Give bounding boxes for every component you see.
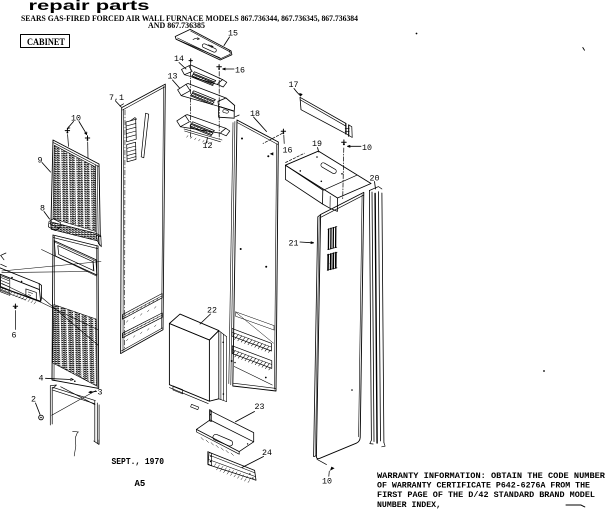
- svg-text:10: 10: [362, 144, 372, 153]
- svg-text:10: 10: [322, 478, 332, 487]
- svg-text:9: 9: [38, 157, 43, 166]
- svg-text:repair parts: repair parts: [29, 0, 150, 13]
- svg-text:FIRST PAGE OF THE D/42 STANDAR: FIRST PAGE OF THE D/42 STANDARD BRAND MO…: [377, 490, 595, 500]
- svg-text:CABINET: CABINET: [27, 37, 65, 47]
- svg-text:NUMBER INDEX,: NUMBER INDEX,: [377, 500, 441, 510]
- svg-text:SEPT., 1970: SEPT., 1970: [112, 457, 165, 467]
- svg-text:4: 4: [39, 375, 44, 384]
- svg-text:AND 867.736385: AND 867.736385: [148, 21, 205, 30]
- svg-text:WARRANTY INFORMATION: OBTAIN: WARRANTY INFORMATION: OBTAIN THE CODE NU…: [377, 471, 606, 481]
- svg-text:A5: A5: [135, 479, 146, 489]
- svg-text:3: 3: [98, 389, 103, 398]
- svg-text:18: 18: [250, 110, 260, 119]
- svg-text:6: 6: [12, 332, 17, 341]
- svg-text:17: 17: [289, 81, 299, 90]
- svg-text:16: 16: [235, 66, 245, 75]
- svg-text:23: 23: [255, 403, 265, 412]
- svg-text:21: 21: [289, 240, 299, 249]
- svg-text:19: 19: [312, 140, 322, 149]
- svg-text:12: 12: [203, 142, 213, 151]
- svg-text:22: 22: [207, 307, 217, 316]
- svg-text:16: 16: [283, 147, 293, 156]
- svg-text:OF WARRANTY CERTIFICATE P642-6: OF WARRANTY CERTIFICATE P642-6276A FROM …: [377, 481, 590, 491]
